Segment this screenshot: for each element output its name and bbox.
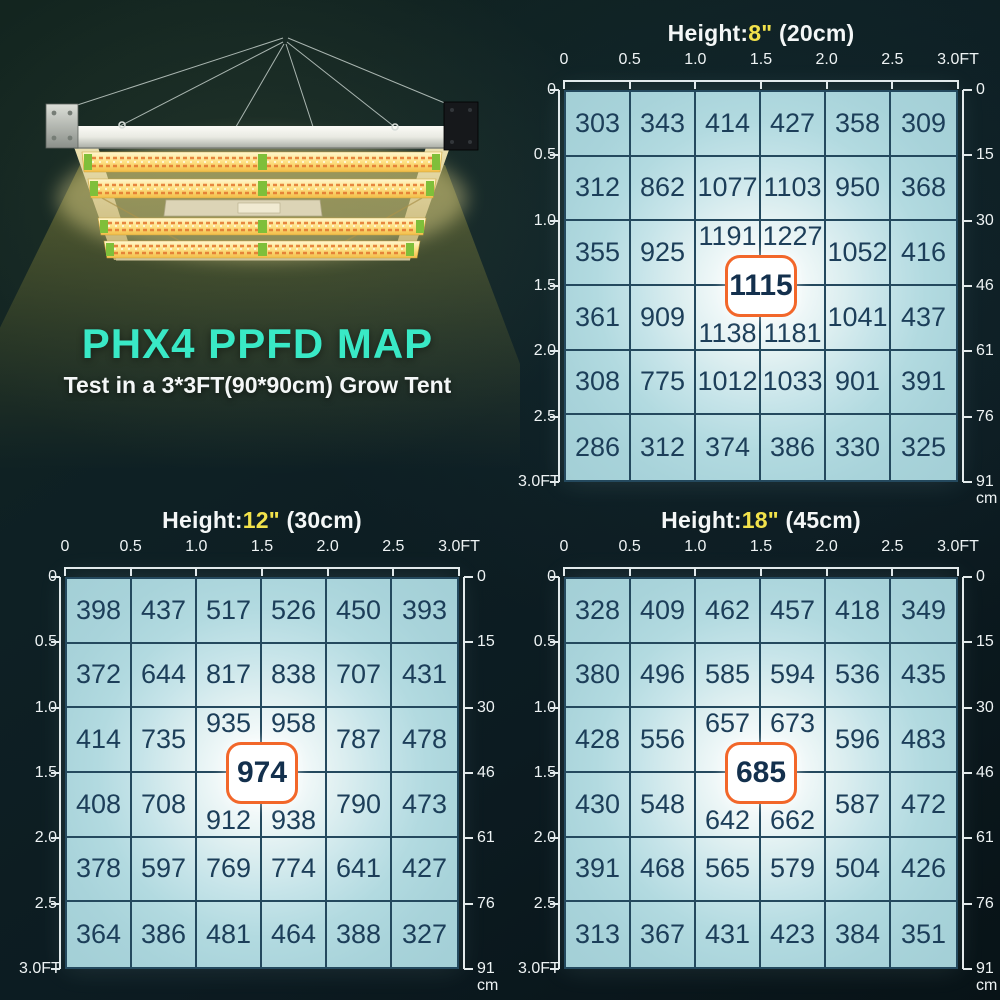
ppfd-cell: 309 — [891, 92, 956, 157]
y-left-tick — [51, 707, 60, 709]
ppfd-cell: 1041 — [826, 286, 891, 351]
ppfd-cell: 587 — [826, 773, 891, 838]
ppfd-cell: 349 — [891, 579, 956, 644]
y-right-tick — [963, 772, 972, 774]
ppfd-cell: 596 — [826, 708, 891, 773]
ppfd-cell: 409 — [631, 579, 696, 644]
ppfd-cell: 372 — [67, 644, 132, 709]
x-tick-label: 1.0 — [684, 51, 706, 69]
page-title: PHX4 PPFD MAP — [20, 322, 495, 366]
driver-box — [164, 200, 322, 216]
center-ppfd-badge: 685 — [725, 742, 797, 804]
cm-unit-label: cm — [477, 977, 517, 995]
ppfd-cell: 427 — [392, 838, 457, 903]
y-cm-label: 0 — [477, 568, 517, 586]
y-cm-label: 76 — [477, 895, 517, 913]
x-tick-label: 2.0 — [816, 51, 838, 69]
x-tick-label: 1.0 — [684, 538, 706, 556]
y-right-tick — [963, 968, 972, 970]
y-left-tick — [550, 285, 559, 287]
x-tick-label: 0 — [61, 538, 70, 556]
y-cm-label: 91 — [976, 960, 1000, 978]
ppfd-cell: 327 — [392, 902, 457, 967]
ppfd-cell: 437 — [891, 286, 956, 351]
cm-unit-label: cm — [976, 977, 1000, 995]
ppfd-cell: 398 — [67, 579, 132, 644]
ppfd-cell: 388 — [327, 902, 392, 967]
hero-text: PHX4 PPFD MAP Test in a 3*3FT(90*90cm) G… — [20, 322, 495, 399]
ppfd-cell: 355 — [566, 221, 631, 286]
x-tick-label: 1.0 — [185, 538, 207, 556]
y-cm-label: 30 — [976, 699, 1000, 717]
center-ppfd-value: 1115 — [729, 269, 792, 303]
ppfd-map-page: PHX4 PPFD MAP Test in a 3*3FT(90*90cm) G… — [0, 0, 1000, 1000]
y-right-tick — [963, 154, 972, 156]
x-tick — [891, 567, 893, 576]
ppfd-cell: 374 — [696, 415, 761, 480]
y-left-tick — [550, 154, 559, 156]
ppfd-cell: 1033 — [761, 351, 826, 416]
ppfd-chart: Height:8" (20cm) 00.51.01.52.02.53.0FT 0… — [518, 18, 1000, 498]
ppfd-cell: 408 — [67, 773, 132, 838]
ppfd-cell: 380 — [566, 644, 631, 709]
ppfd-cell: 579 — [761, 838, 826, 903]
chart-height-value: 18" — [742, 507, 779, 533]
ppfd-cell: 384 — [826, 902, 891, 967]
y-cm-label: 61 — [976, 829, 1000, 847]
ppfd-cell: 769 — [197, 838, 262, 903]
x-tick-label: 3.0FT — [438, 538, 480, 556]
x-tick-label: 2.5 — [881, 51, 903, 69]
y-left-tick — [51, 576, 60, 578]
y-right-tick — [963, 285, 972, 287]
x-tick — [760, 80, 762, 89]
y-right-tick — [963, 220, 972, 222]
ppfd-cell: 431 — [696, 902, 761, 967]
chart-height-value: 12" — [243, 507, 280, 533]
ppfd-cell: 774 — [262, 838, 327, 903]
y-cm-label: 91 — [477, 960, 517, 978]
y-cm-label: 15 — [477, 633, 517, 651]
ppfd-cell: 423 — [761, 902, 826, 967]
x-tick-label: 0.5 — [619, 51, 641, 69]
y-cm-label: 91 — [976, 473, 1000, 491]
chart-title-prefix: Height: — [661, 507, 742, 533]
ppfd-cell: 526 — [262, 579, 327, 644]
y-left-tick — [550, 968, 559, 970]
y-cm-label: 15 — [976, 633, 1000, 651]
ppfd-cell: 597 — [132, 838, 197, 903]
y-left-tick — [550, 481, 559, 483]
y-left-tick — [51, 641, 60, 643]
y-left-tick — [51, 772, 60, 774]
ppfd-cell: 641 — [327, 838, 392, 903]
x-tick-label: 0.5 — [619, 538, 641, 556]
y-left-tick — [550, 903, 559, 905]
ppfd-cell: 950 — [826, 157, 891, 222]
ppfd-cell: 468 — [631, 838, 696, 903]
ppfd-cell: 594 — [761, 644, 826, 709]
ppfd-chart: Height:12" (30cm) 00.51.01.52.02.53.0FT … — [19, 505, 519, 985]
x-tick-label: 1.5 — [750, 538, 772, 556]
y-right-tick — [464, 576, 473, 578]
ppfd-cell: 351 — [891, 902, 956, 967]
ppfd-cell: 483 — [891, 708, 956, 773]
chart-title-suffix: (20cm) — [772, 20, 854, 46]
ppfd-cell: 901 — [826, 351, 891, 416]
ppfd-cell: 644 — [132, 644, 197, 709]
y-left-tick — [550, 89, 559, 91]
y-left-tick — [550, 220, 559, 222]
x-tick — [458, 567, 460, 576]
x-tick-label: 3.0FT — [937, 51, 979, 69]
y-right-tick — [464, 641, 473, 643]
y-left-tick — [550, 350, 559, 352]
x-tick — [694, 80, 696, 89]
ppfd-cell: 472 — [891, 773, 956, 838]
ppfd-cell: 450 — [327, 579, 392, 644]
ppfd-cell: 430 — [566, 773, 631, 838]
ppfd-cell: 817 — [197, 644, 262, 709]
x-tick — [195, 567, 197, 576]
y-right-tick — [963, 641, 972, 643]
ppfd-cell: 1103 — [761, 157, 826, 222]
ppfd-cell: 708 — [132, 773, 197, 838]
y-left-tick — [51, 968, 60, 970]
x-tick — [826, 567, 828, 576]
ppfd-cell: 787 — [327, 708, 392, 773]
y-cm-label: 0 — [976, 568, 1000, 586]
chart-title-prefix: Height: — [668, 20, 749, 46]
y-cm-label: 76 — [976, 895, 1000, 913]
x-tick-label: 0 — [560, 538, 569, 556]
center-ppfd-value: 685 — [736, 756, 786, 790]
y-cm-label: 30 — [477, 699, 517, 717]
x-tick — [826, 80, 828, 89]
ppfd-cell: 462 — [696, 579, 761, 644]
x-tick — [891, 80, 893, 89]
chart-title-suffix: (30cm) — [280, 507, 362, 533]
ppfd-cell: 790 — [327, 773, 392, 838]
ppfd-cell: 312 — [566, 157, 631, 222]
ppfd-cell: 391 — [891, 351, 956, 416]
ppfd-cell: 358 — [826, 92, 891, 157]
x-tick — [563, 80, 565, 89]
x-tick — [392, 567, 394, 576]
x-tick — [629, 567, 631, 576]
y-right-tick — [963, 903, 972, 905]
center-ppfd-value: 974 — [237, 756, 287, 790]
y-right-tick — [963, 707, 972, 709]
y-right-tick — [464, 903, 473, 905]
ppfd-cell: 313 — [566, 902, 631, 967]
y-right-tick — [464, 837, 473, 839]
ppfd-cell: 707 — [327, 644, 392, 709]
ppfd-cell: 426 — [891, 838, 956, 903]
ppfd-cell: 391 — [566, 838, 631, 903]
ppfd-cell: 328 — [566, 579, 631, 644]
x-tick — [130, 567, 132, 576]
ppfd-cell: 585 — [696, 644, 761, 709]
ppfd-cell: 367 — [631, 902, 696, 967]
ppfd-cell: 308 — [566, 351, 631, 416]
ppfd-cell: 416 — [891, 221, 956, 286]
ppfd-cell: 536 — [826, 644, 891, 709]
ppfd-cell: 464 — [262, 902, 327, 967]
ppfd-cell: 325 — [891, 415, 956, 480]
ppfd-cell: 862 — [631, 157, 696, 222]
x-tick-label: 3.0FT — [937, 538, 979, 556]
ppfd-cell: 414 — [696, 92, 761, 157]
chart-title: Height:8" (20cm) — [564, 20, 958, 47]
y-cm-label: 30 — [976, 212, 1000, 230]
ppfd-cell: 1052 — [826, 221, 891, 286]
x-tick-label: 0 — [560, 51, 569, 69]
ppfd-cell: 478 — [392, 708, 457, 773]
ppfd-cell: 386 — [132, 902, 197, 967]
left-corner-block — [46, 104, 78, 148]
x-tick — [760, 567, 762, 576]
center-ppfd-badge: 974 — [226, 742, 298, 804]
y-right-tick — [963, 89, 972, 91]
y-cm-label: 46 — [477, 764, 517, 782]
y-left-tick — [51, 903, 60, 905]
center-ppfd-badge: 1115 — [725, 255, 797, 317]
y-left-tick — [550, 707, 559, 709]
x-tick — [957, 80, 959, 89]
ppfd-cell: 1077 — [696, 157, 761, 222]
x-tick — [563, 567, 565, 576]
y-left-tick — [550, 837, 559, 839]
ppfd-cell: 368 — [891, 157, 956, 222]
x-tick — [629, 80, 631, 89]
y-cm-label: 61 — [477, 829, 517, 847]
y-left-tick — [550, 641, 559, 643]
page-subtitle: Test in a 3*3FT(90*90cm) Grow Tent — [20, 372, 495, 399]
y-right-tick — [464, 772, 473, 774]
ppfd-cell: 364 — [67, 902, 132, 967]
grow-light-image — [0, 0, 520, 480]
ppfd-cell: 418 — [826, 579, 891, 644]
ppfd-cell: 435 — [891, 644, 956, 709]
y-right-tick — [963, 837, 972, 839]
x-tick — [261, 567, 263, 576]
y-right-tick — [963, 350, 972, 352]
x-tick — [694, 567, 696, 576]
x-tick-label: 2.0 — [816, 538, 838, 556]
ppfd-cell: 330 — [826, 415, 891, 480]
ppfd-cell: 735 — [132, 708, 197, 773]
y-left-tick — [51, 837, 60, 839]
ppfd-cell: 286 — [566, 415, 631, 480]
x-tick-label: 0.5 — [120, 538, 142, 556]
x-tick — [327, 567, 329, 576]
ppfd-cell: 378 — [67, 838, 132, 903]
ppfd-cell: 386 — [761, 415, 826, 480]
ppfd-cell: 1012 — [696, 351, 761, 416]
ppfd-cell: 481 — [197, 902, 262, 967]
y-right-tick — [464, 707, 473, 709]
ppfd-cell: 909 — [631, 286, 696, 351]
y-right-tick — [963, 481, 972, 483]
ppfd-cell: 437 — [132, 579, 197, 644]
ppfd-cell: 414 — [67, 708, 132, 773]
x-tick — [957, 567, 959, 576]
ppfd-cell: 427 — [761, 92, 826, 157]
chart-title: Height:12" (30cm) — [65, 507, 459, 534]
ppfd-cell: 496 — [631, 644, 696, 709]
y-right-tick — [963, 576, 972, 578]
ppfd-cell: 303 — [566, 92, 631, 157]
chart-height-value: 8" — [748, 20, 772, 46]
chart-title-prefix: Height: — [162, 507, 243, 533]
ppfd-cell: 838 — [262, 644, 327, 709]
x-tick — [64, 567, 66, 576]
x-tick-label: 1.5 — [251, 538, 273, 556]
x-tick-label: 1.5 — [750, 51, 772, 69]
ppfd-cell: 517 — [197, 579, 262, 644]
y-right-tick — [464, 968, 473, 970]
ppfd-cell: 393 — [392, 579, 457, 644]
y-cm-label: 46 — [976, 277, 1000, 295]
ppfd-cell: 473 — [392, 773, 457, 838]
ppfd-cell: 504 — [826, 838, 891, 903]
right-corner-block — [444, 102, 478, 150]
y-left-tick — [550, 576, 559, 578]
y-cm-label: 61 — [976, 342, 1000, 360]
x-tick-label: 2.5 — [382, 538, 404, 556]
ppfd-cell: 548 — [631, 773, 696, 838]
chart-title-suffix: (45cm) — [779, 507, 861, 533]
y-left-tick — [550, 416, 559, 418]
ppfd-cell: 343 — [631, 92, 696, 157]
ppfd-cell: 431 — [392, 644, 457, 709]
ppfd-cell: 925 — [631, 221, 696, 286]
ppfd-cell: 457 — [761, 579, 826, 644]
y-right-tick — [963, 416, 972, 418]
ppfd-chart: Height:18" (45cm) 00.51.01.52.02.53.0FT … — [518, 505, 1000, 985]
ppfd-cell: 312 — [631, 415, 696, 480]
x-tick-label: 2.5 — [881, 538, 903, 556]
ppfd-cell: 361 — [566, 286, 631, 351]
x-tick-label: 2.0 — [317, 538, 339, 556]
y-cm-label: 46 — [976, 764, 1000, 782]
ppfd-cell: 556 — [631, 708, 696, 773]
y-cm-label: 15 — [976, 146, 1000, 164]
ppfd-cell: 428 — [566, 708, 631, 773]
y-left-tick — [550, 772, 559, 774]
y-cm-label: 0 — [976, 81, 1000, 99]
chart-title: Height:18" (45cm) — [564, 507, 958, 534]
ppfd-cell: 565 — [696, 838, 761, 903]
y-cm-label: 76 — [976, 408, 1000, 426]
ppfd-cell: 775 — [631, 351, 696, 416]
